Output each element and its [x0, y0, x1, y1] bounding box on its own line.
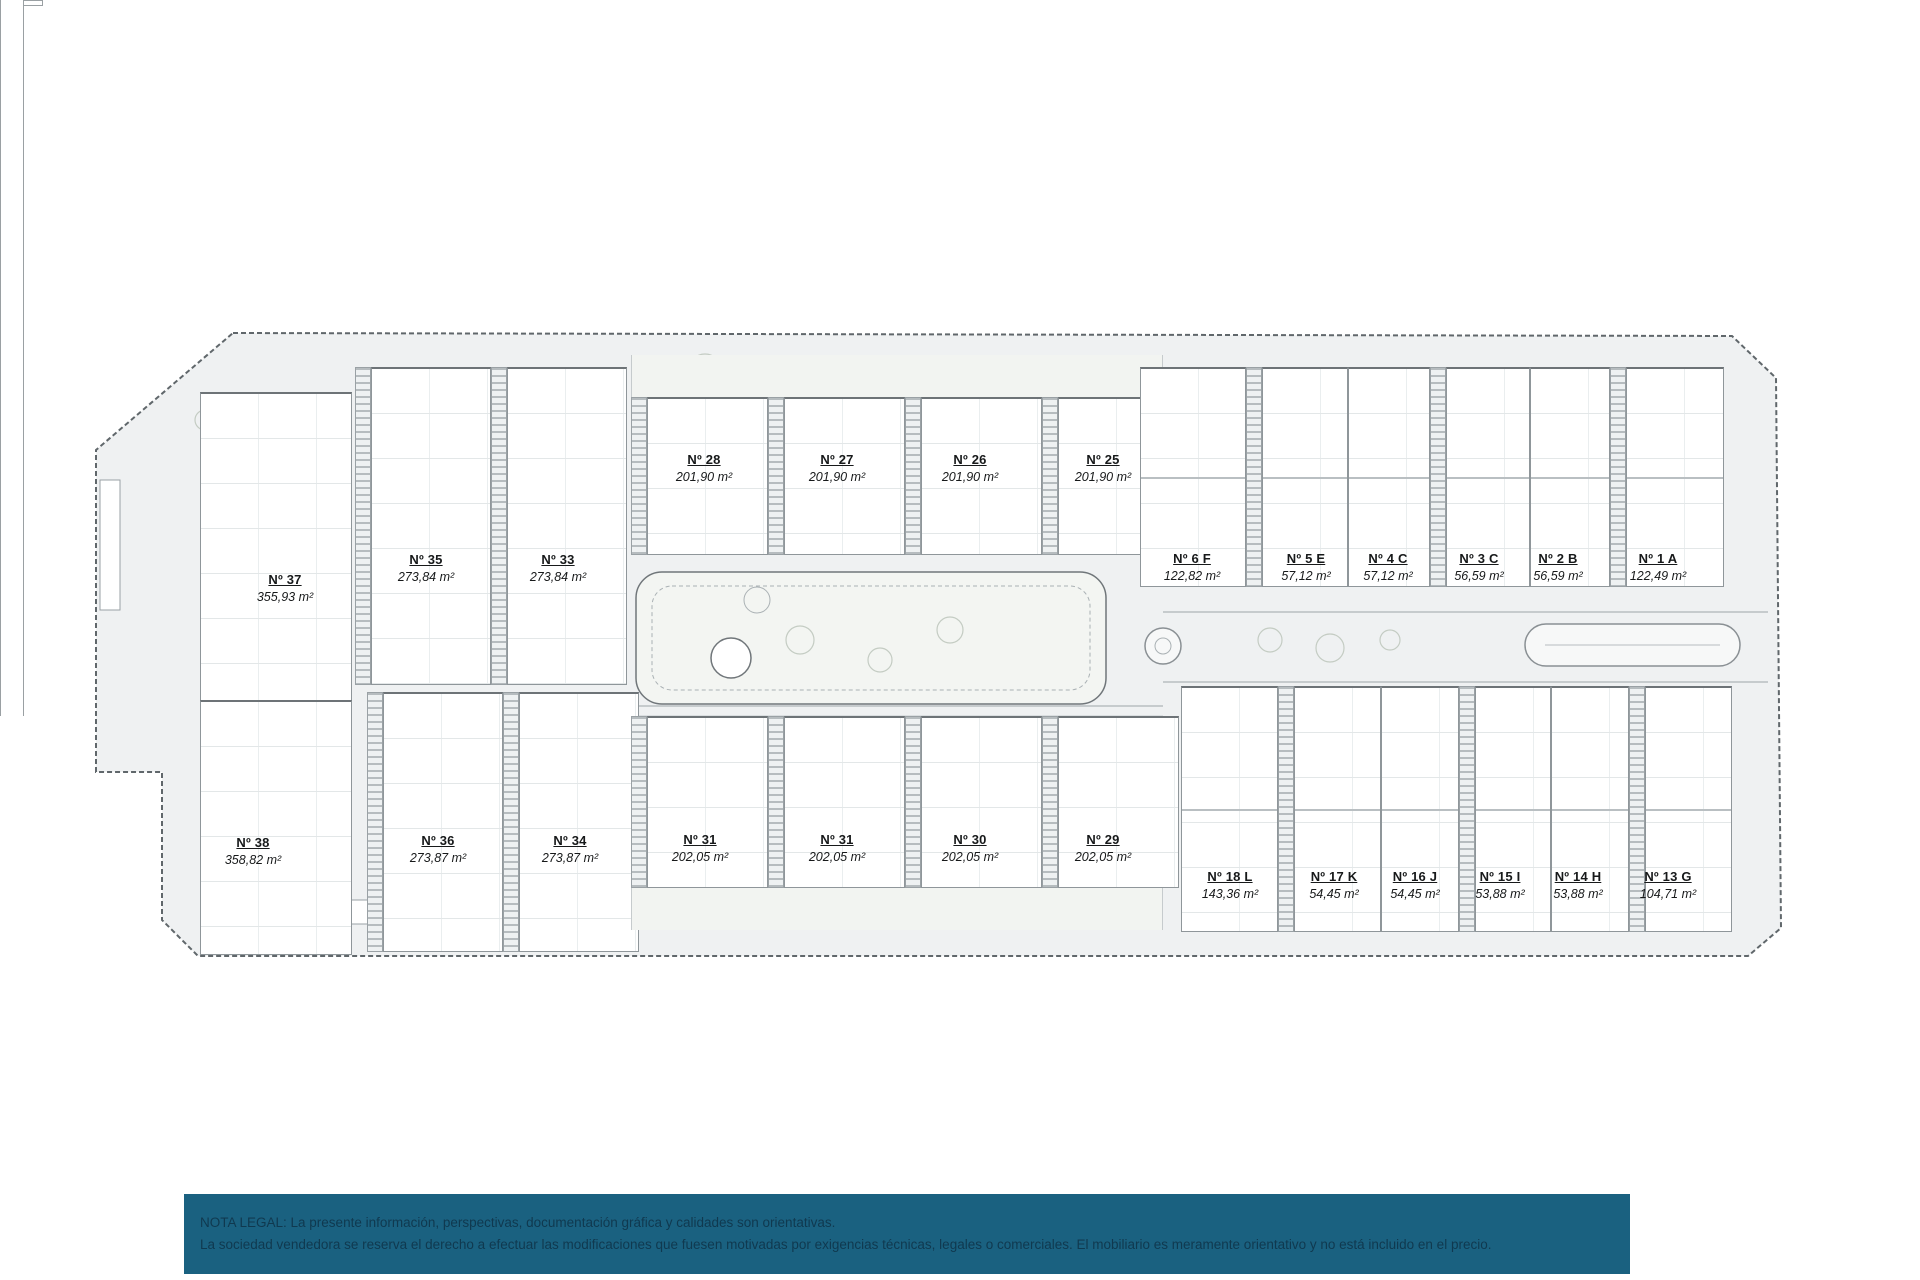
unit-number: Nº 3 C [1454, 551, 1503, 568]
unit-number: Nº 30 [942, 832, 998, 849]
unit-area: 201,90 m² [676, 469, 732, 485]
unit-area: 273,87 m² [542, 850, 598, 866]
unit-area: 355,93 m² [257, 589, 313, 605]
building-row-lower [367, 692, 631, 952]
unit-area: 202,05 m² [672, 849, 728, 865]
unit-number: Nº 13 G [1640, 869, 1696, 886]
unit-label-17k: Nº 17 K 54,45 m² [1309, 869, 1358, 902]
unit-area: 273,84 m² [398, 569, 454, 585]
unit-label-31b: Nº 31 202,05 m² [809, 832, 865, 865]
unit-area: 54,45 m² [1390, 886, 1439, 902]
unit-number: Nº 26 [942, 452, 998, 469]
unit-area: 143,36 m² [1202, 886, 1258, 902]
unit-area: 201,90 m² [1075, 469, 1131, 485]
unit-label-3c: Nº 3 C 56,59 m² [1454, 551, 1503, 584]
unit-number: Nº 37 [257, 572, 313, 589]
frame-line-inner [23, 0, 24, 716]
unit-label-4c: Nº 4 C 57,12 m² [1363, 551, 1412, 584]
unit-number: Nº 17 K [1309, 869, 1358, 886]
building-row-upper [355, 367, 619, 685]
unit-label-1a: Nº 1 A 122,49 m² [1630, 551, 1686, 584]
unit-area: 122,49 m² [1630, 568, 1686, 584]
unit-number: Nº 16 J [1390, 869, 1439, 886]
building-villa-38 [200, 700, 350, 952]
unit-number: Nº 28 [676, 452, 732, 469]
unit-label-34: Nº 34 273,87 m² [542, 833, 598, 866]
unit-area: 201,90 m² [809, 469, 865, 485]
unit-label-37: Nº 37 355,93 m² [257, 572, 313, 605]
roundabout [1145, 628, 1181, 664]
legal-line-2: La sociedad vendedora se reserva el dere… [200, 1234, 1612, 1256]
unit-label-25: Nº 25 201,90 m² [1075, 452, 1131, 485]
unit-number: Nº 4 C [1363, 551, 1412, 568]
unit-area: 56,59 m² [1454, 568, 1503, 584]
unit-number: Nº 36 [410, 833, 466, 850]
unit-label-6f: Nº 6 F 122,82 m² [1164, 551, 1220, 584]
frame-line-outer [0, 0, 1, 716]
unit-label-29: Nº 29 202,05 m² [1075, 832, 1131, 865]
unit-area: 104,71 m² [1640, 886, 1696, 902]
pool-circle [711, 638, 751, 678]
unit-number: Nº 6 F [1164, 551, 1220, 568]
unit-number: Nº 15 I [1475, 869, 1524, 886]
unit-number: Nº 5 E [1281, 551, 1330, 568]
unit-area: 202,05 m² [1075, 849, 1131, 865]
unit-label-31a: Nº 31 202,05 m² [672, 832, 728, 865]
unit-number: Nº 35 [398, 552, 454, 569]
unit-area: 202,05 m² [942, 849, 998, 865]
legal-footer: NOTA LEGAL: La presente información, per… [184, 1194, 1630, 1274]
unit-area: 273,87 m² [410, 850, 466, 866]
unit-number: Nº 31 [809, 832, 865, 849]
frame-tick [23, 0, 43, 6]
unit-area: 54,45 m² [1309, 886, 1358, 902]
unit-label-36: Nº 36 273,87 m² [410, 833, 466, 866]
unit-area: 201,90 m² [942, 469, 998, 485]
building-villa-37 [200, 392, 350, 702]
unit-label-26: Nº 26 201,90 m² [942, 452, 998, 485]
unit-label-33: Nº 33 273,84 m² [530, 552, 586, 585]
building-right-top [1140, 367, 1706, 587]
unit-label-38: Nº 38 358,82 m² [225, 835, 281, 868]
building-mid-bottom [631, 716, 1163, 930]
unit-area: 57,12 m² [1363, 568, 1412, 584]
unit-number: Nº 27 [809, 452, 865, 469]
unit-number: Nº 29 [1075, 832, 1131, 849]
unit-number: Nº 14 H [1553, 869, 1602, 886]
unit-number: Nº 18 L [1202, 869, 1258, 886]
unit-number: Nº 25 [1075, 452, 1131, 469]
unit-number: Nº 31 [672, 832, 728, 849]
unit-area: 273,84 m² [530, 569, 586, 585]
unit-label-16j: Nº 16 J 54,45 m² [1390, 869, 1439, 902]
unit-area: 57,12 m² [1281, 568, 1330, 584]
unit-area: 56,59 m² [1533, 568, 1582, 584]
unit-number: Nº 34 [542, 833, 598, 850]
unit-label-18l: Nº 18 L 143,36 m² [1202, 869, 1258, 902]
central-courtyard [636, 572, 1106, 704]
unit-area: 53,88 m² [1475, 886, 1524, 902]
legal-line-1: NOTA LEGAL: La presente información, per… [200, 1212, 1612, 1234]
unit-number: Nº 38 [225, 835, 281, 852]
unit-label-35: Nº 35 273,84 m² [398, 552, 454, 585]
unit-label-2b: Nº 2 B 56,59 m² [1533, 551, 1582, 584]
pool-villa-37 [100, 480, 120, 610]
unit-area: 202,05 m² [809, 849, 865, 865]
unit-area: 122,82 m² [1164, 568, 1220, 584]
unit-label-14h: Nº 14 H 53,88 m² [1553, 869, 1602, 902]
unit-number: Nº 1 A [1630, 551, 1686, 568]
site-plan-page: Nº 37 355,93 m² Nº 38 358,82 m² Nº 35 27… [0, 0, 1920, 1280]
unit-label-13g: Nº 13 G 104,71 m² [1640, 869, 1696, 902]
unit-label-5e: Nº 5 E 57,12 m² [1281, 551, 1330, 584]
unit-area: 358,82 m² [225, 852, 281, 868]
building-right-bottom [1181, 686, 1714, 932]
unit-label-15i: Nº 15 I 53,88 m² [1475, 869, 1524, 902]
unit-label-27: Nº 27 201,90 m² [809, 452, 865, 485]
unit-label-28: Nº 28 201,90 m² [676, 452, 732, 485]
unit-area: 53,88 m² [1553, 886, 1602, 902]
unit-number: Nº 33 [530, 552, 586, 569]
unit-number: Nº 2 B [1533, 551, 1582, 568]
unit-label-30: Nº 30 202,05 m² [942, 832, 998, 865]
